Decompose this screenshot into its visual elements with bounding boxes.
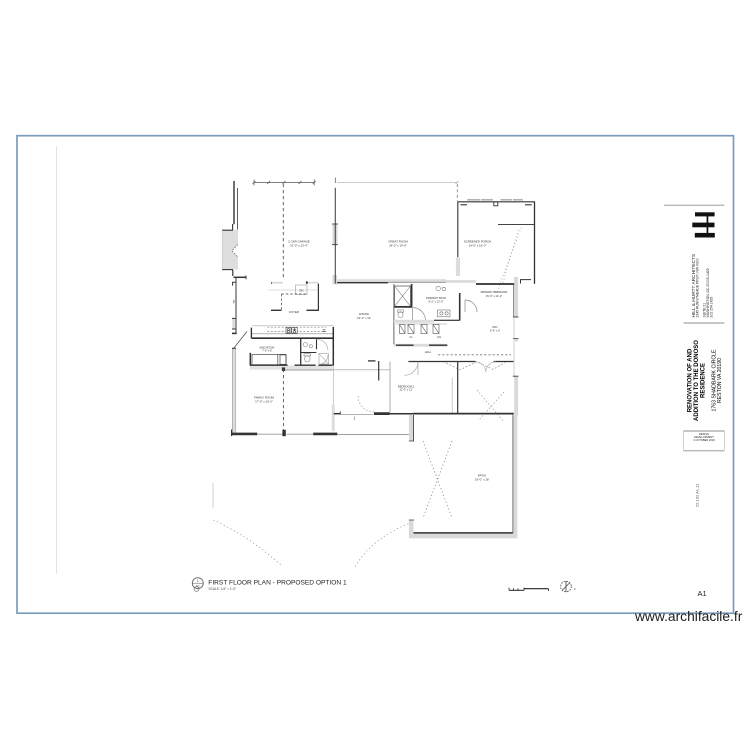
svg-text:17'-0" x 19'-2": 17'-0" x 19'-2": [255, 400, 273, 404]
svg-text:22-102 A1.11: 22-102 A1.11: [694, 483, 699, 507]
svg-text:16'-0" x 18': 16'-0" x 18': [475, 477, 490, 481]
svg-text:FOYER: FOYER: [289, 310, 299, 314]
svg-text:12'-0" x 13': 12'-0" x 13': [357, 316, 371, 320]
svg-text:9'-2" x 12'-0": 9'-2" x 12'-0": [428, 300, 443, 304]
svg-text:15'-0" x 14'-2": 15'-0" x 14'-2": [486, 294, 503, 298]
svg-text:21'-0" x 23'-4": 21'-0" x 23'-4": [290, 244, 308, 248]
svg-text:SCALE: 1/4" = 1'-0": SCALE: 1/4" = 1'-0": [209, 587, 237, 591]
svg-text:BEDROOM 2: BEDROOM 2: [398, 384, 415, 388]
svg-text:6'-0" x 9': 6'-0" x 9': [490, 329, 501, 333]
svg-text:11'-0" x 12': 11'-0" x 12': [400, 388, 413, 392]
svg-text:202 254 1429: 202 254 1429: [710, 297, 714, 318]
svg-text:14'-0" x 16'-0": 14'-0" x 16'-0": [469, 244, 487, 248]
svg-text:2345 RUNNYMEADE PKWY, NW #300: 2345 RUNNYMEADE PKWY, NW #300: [696, 258, 700, 317]
svg-text:WIC: WIC: [492, 325, 497, 329]
svg-text:4 OCTOBER 2023: 4 OCTOBER 2023: [693, 438, 715, 442]
svg-text:www.archifacile.fr: www.archifacile.fr: [634, 609, 743, 624]
svg-text:A1: A1: [698, 589, 707, 598]
svg-text:1: 1: [197, 579, 199, 583]
svg-text:CL: CL: [409, 335, 413, 339]
svg-text:LIN: LIN: [437, 335, 441, 339]
svg-text:RESIDENCE: RESIDENCE: [700, 363, 706, 398]
svg-text:ADDITION TO THE DONOSO: ADDITION TO THE DONOSO: [694, 340, 700, 421]
svg-text:MUD ROOM: MUD ROOM: [260, 345, 275, 349]
svg-text:7'-0" x 6': 7'-0" x 6': [262, 349, 272, 353]
svg-text:RENOVATION OF AND: RENOVATION OF AND: [688, 348, 694, 412]
svg-text:A1: A1: [196, 585, 200, 589]
svg-text:RESTON VA 20190: RESTON VA 20190: [717, 358, 723, 403]
svg-text:FIRST FLOOR PLAN - PROPOSED OP: FIRST FLOOR PLAN - PROPOSED OPTION 1: [208, 580, 347, 587]
svg-text:DN: DN: [299, 289, 303, 293]
svg-text:PRIMARY BEDROOM: PRIMARY BEDROOM: [481, 290, 509, 294]
svg-text:24'-2" x 19'-6": 24'-2" x 19'-6": [389, 244, 407, 248]
svg-text:HALL: HALL: [425, 350, 432, 354]
svg-text:PRIMARY BATH: PRIMARY BATH: [426, 296, 446, 300]
